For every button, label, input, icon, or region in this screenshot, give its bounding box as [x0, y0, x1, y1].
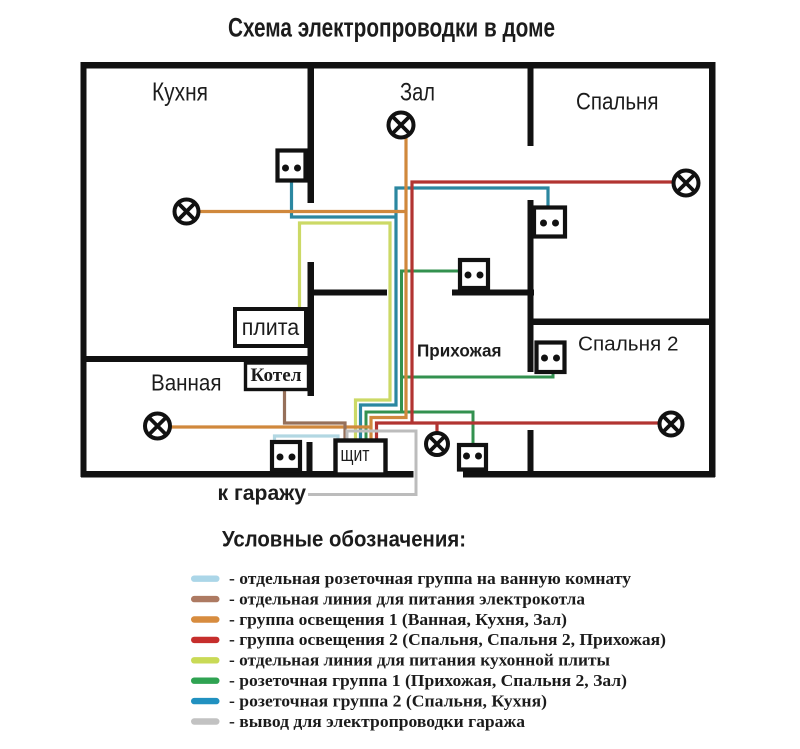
svg-text:- отдельная линия для питания: - отдельная линия для питания кухонной п…	[229, 651, 610, 670]
svg-text:- отдельная розеточная группа: - отдельная розеточная группа на ванную …	[229, 569, 632, 588]
svg-text:- отдельная линия для питания: - отдельная линия для питания электрокот…	[229, 589, 586, 608]
svg-text:- группа освещения 1 (Ванная,: - группа освещения 1 (Ванная, Кухня, Зал…	[229, 610, 567, 629]
svg-text:Спальня: Спальня	[576, 89, 659, 116]
svg-text:- группа освещения 2 (Спальня,: - группа освещения 2 (Спальня, Спальня 2…	[229, 630, 666, 649]
svg-text:Котел: Котел	[251, 366, 302, 386]
svg-text:- розеточная группа 1 (Прихожа: - розеточная группа 1 (Прихожая, Спальня…	[229, 671, 627, 690]
svg-text:к гаражу: к гаражу	[218, 482, 307, 505]
svg-text:Спальня 2: Спальня 2	[578, 334, 679, 356]
svg-text:Зал: Зал	[400, 79, 435, 107]
svg-text:Условные обозначения:: Условные обозначения:	[222, 527, 466, 552]
svg-text:Схема электропроводки в доме: Схема электропроводки в доме	[228, 13, 555, 43]
svg-text:- вывод для электропроводки га: - вывод для электропроводки гаража	[229, 712, 526, 731]
svg-text:Прихожая: Прихожая	[417, 341, 502, 361]
svg-text:- розеточная группа 2 (Спальня: - розеточная группа 2 (Спальня, Кухня)	[229, 691, 547, 710]
svg-text:Кухня: Кухня	[152, 77, 208, 107]
svg-text:щит: щит	[341, 444, 370, 466]
svg-text:Ванная: Ванная	[151, 370, 222, 396]
svg-text:плита: плита	[242, 314, 300, 340]
